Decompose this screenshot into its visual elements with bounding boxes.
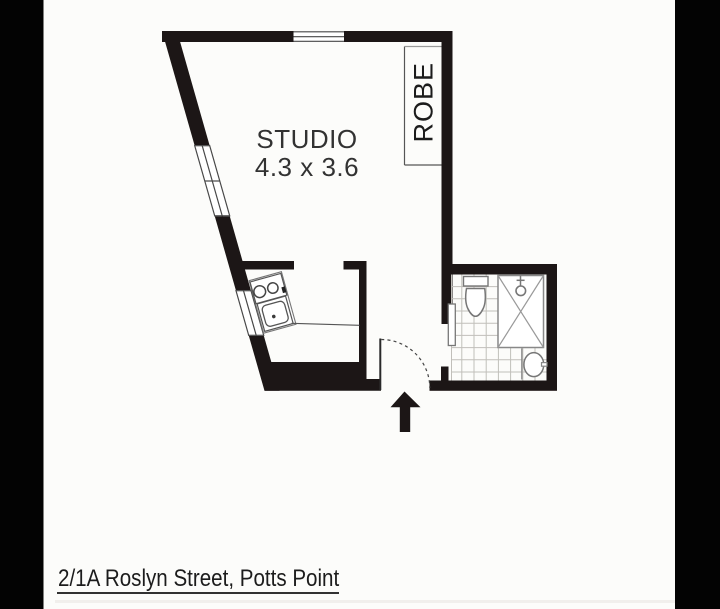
svg-text:4.3 x 3.6: 4.3 x 3.6 xyxy=(255,152,359,182)
svg-text:STUDIO: STUDIO xyxy=(256,124,357,154)
svg-text:ROBE: ROBE xyxy=(409,62,439,143)
svg-text:2/1A Roslyn Street, Potts Poin: 2/1A Roslyn Street, Potts Point xyxy=(58,564,340,591)
